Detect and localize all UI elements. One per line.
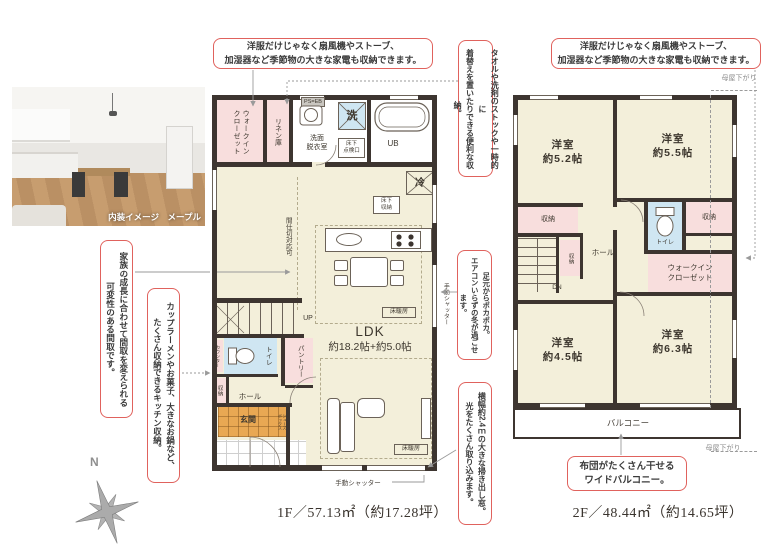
hall-label: ホール	[230, 392, 270, 402]
moya-sagari-label-top: 母屋下がり	[716, 74, 762, 84]
note-flexible-layout: 家族の成長に合わせて間取を変えられる 可変性のある間取です。	[100, 240, 133, 418]
washroom-label: 洗面 脱衣室	[300, 132, 334, 154]
floorplan-sheet: 内装イメージ メープル 洋服だけじゃなく扇風機やストーブ、 加湿器など季節物の大…	[0, 0, 770, 559]
photo-pendant-cord	[112, 93, 113, 112]
window	[530, 95, 558, 100]
wall	[580, 237, 583, 279]
shoes-box-label: シューズ ボックス	[276, 409, 288, 435]
note-kitchen-storage: カップラーメンやお菓子、大きなお鍋など、 たくさん収納できるキッチン収納。	[147, 288, 180, 483]
storage-small-label: 収納	[562, 243, 578, 273]
photo-caption: 内装イメージ メープル	[108, 211, 201, 223]
window	[540, 403, 585, 408]
pantry-label: パントリー	[289, 342, 309, 380]
bathtub-icon	[374, 102, 430, 132]
window	[732, 320, 737, 358]
wall	[644, 202, 648, 254]
floor-heating-label: 床暖房	[382, 307, 416, 318]
wall	[513, 300, 617, 304]
photo-door	[166, 126, 193, 189]
counter-label: カウンター	[213, 341, 223, 371]
storage-left-label: 収納	[518, 207, 578, 233]
photo-chair-left	[72, 172, 86, 197]
note-floor-heating: 足元からポカポカ。 エアコンいらずの冬が過ごせます。	[457, 250, 492, 360]
chair	[334, 275, 348, 286]
ottoman-table	[357, 398, 385, 418]
fridge-label: 冷	[406, 171, 434, 195]
tv-board	[421, 398, 431, 439]
compass: N	[62, 442, 152, 557]
stove-icon	[391, 231, 421, 249]
toilet-label-2f: トイレ	[650, 239, 680, 248]
window	[390, 95, 418, 100]
chair	[390, 260, 404, 271]
wall	[212, 403, 292, 407]
wall	[644, 250, 737, 254]
window	[513, 115, 518, 145]
photo-upper-cabinets	[12, 109, 70, 142]
wic-label-1f: ウォークイン クローゼット	[224, 108, 258, 156]
note-wide-balcony: 布団がたくさん干せる ワイドバルコニー。	[567, 456, 687, 491]
moya-dashed-line	[710, 95, 712, 408]
wall	[686, 233, 732, 236]
balcony-label: バルコニー	[590, 418, 666, 429]
wall	[263, 95, 267, 165]
compass-north-label: N	[90, 455, 99, 469]
sofa-back	[327, 398, 340, 454]
room-4-5-label: 洋室 約4.5帖	[528, 336, 598, 366]
underfloor-storage-label: 床下 収納	[373, 196, 400, 214]
chair	[334, 260, 348, 271]
linen-label: リネン庫	[272, 112, 284, 152]
wall	[367, 95, 371, 165]
toilet-label: トイレ	[262, 342, 272, 370]
manual-shutter-label-side: 手動シャッター	[439, 274, 450, 334]
window	[322, 465, 362, 471]
entrance-label: 玄関	[228, 415, 268, 426]
stairs-center-line	[537, 238, 538, 292]
partition-dashed-line	[297, 177, 299, 310]
wall	[281, 336, 285, 386]
window	[367, 465, 425, 471]
f1-porch	[214, 440, 306, 466]
note-linen-storage: タオルや洗剤のストックや一時的に 着替えを置いたりできる便利な収納。	[458, 40, 493, 177]
window	[513, 330, 518, 370]
photo-pendant-lamp	[109, 111, 117, 116]
stairs-dn-label: DN	[548, 284, 566, 293]
floor1-caption: 1F／57.13㎡（約17.28坪）	[265, 505, 460, 523]
washer-label: 洗	[338, 102, 366, 130]
sofa-seat	[340, 402, 355, 452]
wall	[212, 334, 304, 338]
wall	[212, 374, 278, 377]
hall-label-2f: ホール	[583, 248, 623, 258]
moya-dashed-line	[711, 451, 757, 453]
window	[212, 170, 217, 210]
photo-chair-right	[114, 172, 128, 197]
stairs-up-label: UP	[298, 314, 318, 324]
wic-label-2f: ウォークイン クローゼット	[648, 257, 732, 289]
note-large-window: 横幅約2.4ｍの大きな掃き出し窓。 光をたくさん取り込みます。	[458, 382, 492, 525]
chair	[390, 275, 404, 286]
wall	[617, 292, 737, 296]
interior-photo: 内装イメージ メープル	[12, 87, 205, 226]
wall	[212, 298, 302, 303]
note-closet-1f: 洋服だけじゃなく扇風機やストーブ、 加湿器など季節物の大きな家電も収納できます。	[213, 38, 433, 69]
wall	[226, 377, 229, 403]
partition-option-label: 間仕切対応可	[281, 206, 293, 266]
note-closet-2f: 洋服だけじゃなく扇風機やストーブ、 加湿器など季節物の大きな家電も収納できます。	[551, 38, 761, 69]
storage-label: 収納	[213, 379, 225, 402]
photo-sofa	[12, 205, 66, 226]
moya-dashed-line	[711, 90, 757, 92]
bath-label: UB	[381, 138, 405, 150]
toilet-icon	[228, 344, 256, 368]
wall	[212, 162, 312, 167]
window	[432, 265, 437, 327]
underfloor-hatch-label: 床下 点検口	[338, 138, 365, 158]
photo-kitchen-counter	[12, 152, 78, 178]
compass-main-star	[65, 470, 148, 553]
kitchen-sink-icon	[336, 233, 362, 246]
ldk-size-label: 約18.2帖+約5.0帖	[303, 341, 437, 354]
wall	[289, 95, 293, 165]
manual-shutter-label-bottom: 手動シャッター	[326, 479, 390, 489]
wall	[212, 95, 217, 471]
stairs-1f	[217, 303, 302, 334]
window	[640, 95, 672, 100]
room-5-5-label: 洋室 約5.5帖	[638, 132, 708, 162]
window	[732, 125, 737, 157]
wall	[513, 233, 583, 237]
wall	[613, 95, 617, 207]
storage-right-label: 収納	[686, 202, 732, 233]
toilet-icon	[654, 207, 676, 239]
washbasin-icon	[299, 105, 323, 126]
floor-heating-label: 床暖房	[394, 444, 428, 455]
room-5-2-label: 洋室 約5.2帖	[528, 138, 598, 168]
floor2-caption: 2F／48.44㎡（約14.65坪）	[558, 505, 758, 523]
wall	[285, 385, 313, 388]
window	[640, 403, 710, 408]
wall	[325, 162, 437, 167]
room-6-3-label: 洋室 約6.3帖	[638, 328, 708, 358]
dining-table	[350, 257, 388, 287]
ldk-label: LDK	[310, 324, 430, 340]
